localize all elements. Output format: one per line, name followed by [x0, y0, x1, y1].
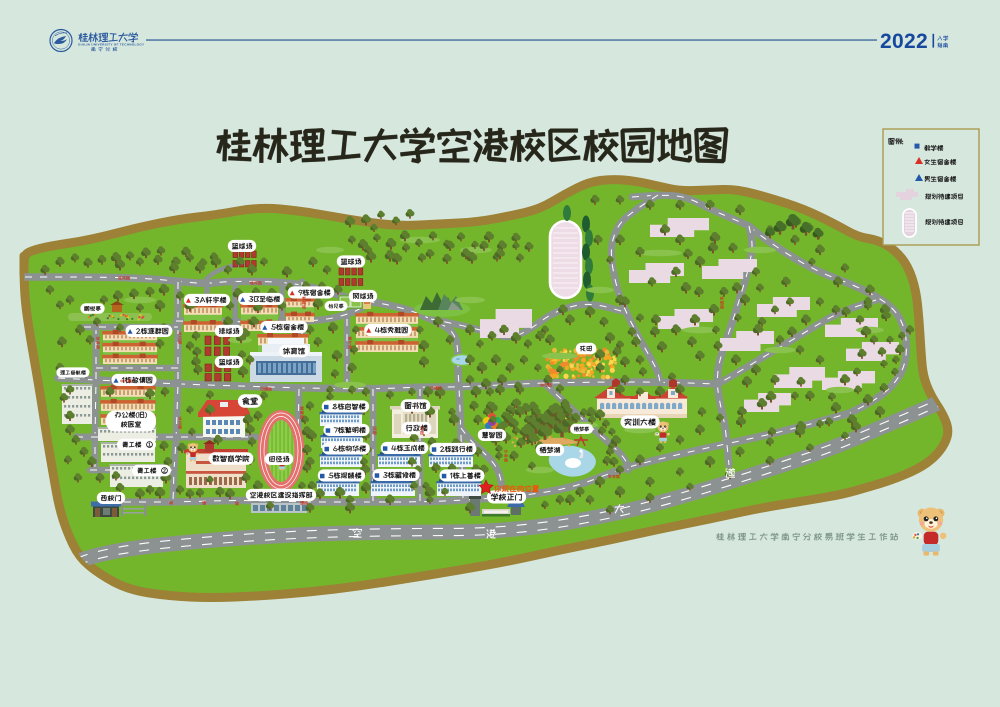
svg-text:2022: 2022 — [880, 30, 928, 53]
svg-text:2: 2 — [163, 469, 166, 475]
svg-text:GUILIN UNIVERSITY OF TECHNOLOG: GUILIN UNIVERSITY OF TECHNOLOGY — [78, 43, 145, 47]
svg-text:1: 1 — [148, 443, 151, 449]
